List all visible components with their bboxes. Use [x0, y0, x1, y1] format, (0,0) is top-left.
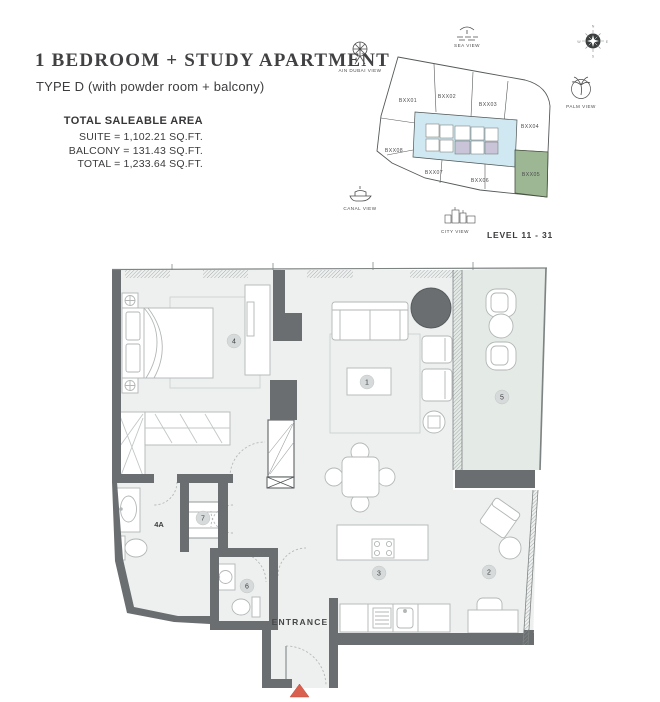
view-label-city: CITY VIEW: [441, 229, 469, 234]
key-plan-building: BXX01 BXX02 BXX03 BXX04 BXX05 BXX06 BXX0…: [377, 57, 550, 197]
unit-label-bxx04: BXX04: [521, 124, 539, 130]
balcony-furniture: [486, 289, 516, 370]
room-label-living: 1: [365, 380, 369, 387]
city-view-icon: [445, 207, 475, 223]
area-line-balcony: BALCONY = 131.43 SQ.FT.: [40, 145, 203, 159]
area-line-suite: SUITE = 1,102.21 SQ.FT.: [40, 131, 203, 145]
compass-n: N: [592, 25, 595, 29]
key-plan: BXX01 BXX02 BXX03 BXX04 BXX05 BXX06 BXX0…: [330, 0, 660, 250]
level-label: LEVEL 11 - 31: [487, 230, 553, 240]
room-label-powder: 6: [245, 584, 249, 591]
unit-label-bxx06: BXX06: [471, 178, 489, 184]
compass-s: S: [592, 55, 595, 59]
canal-view-icon: [350, 186, 371, 201]
room-label-kitchen: 3: [377, 571, 381, 578]
unit-label-bxx03: BXX03: [479, 102, 497, 108]
view-label-palm: PALM VIEW: [566, 104, 596, 109]
entrance-label: ENTRANCE: [272, 617, 329, 627]
shaft: [267, 420, 294, 488]
view-label-sea: SEA VIEW: [454, 43, 480, 48]
area-line-total: TOTAL = 1,233.64 SQ.FT.: [40, 158, 203, 172]
compass-e: E: [606, 40, 609, 44]
sea-view-icon: [457, 27, 478, 40]
compass-w: W: [577, 40, 581, 44]
page-subtitle: TYPE D (with powder room + balcony): [36, 79, 264, 94]
view-label-canal: CANAL VIEW: [343, 206, 376, 211]
unit-label-bxx02: BXX02: [438, 94, 456, 100]
view-label-ain-dubai: AIN DUBAI VIEW: [339, 68, 382, 73]
room-label-balcony: 5: [500, 395, 504, 402]
floor-plan: 1 2 3 4 4A 5 6 7 ENTRANCE: [100, 256, 560, 702]
compass-icon: N E S W: [577, 25, 609, 59]
room-label-closet: 7: [201, 516, 205, 523]
unit-label-bxx01: BXX01: [399, 98, 417, 104]
unit-label-bxx08: BXX08: [385, 148, 403, 154]
area-heading: TOTAL SALEABLE AREA: [40, 115, 203, 127]
room-label-study: 2: [487, 570, 491, 577]
brochure-page: 1 BEDROOM + STUDY APARTMENT TYPE D (with…: [0, 0, 660, 702]
unit-label-bxx07: BXX07: [425, 170, 443, 176]
palm-view-icon: [572, 77, 591, 99]
round-feature: [411, 288, 451, 328]
room-label-bathroom: 4A: [154, 520, 164, 529]
room-label-bedroom: 4: [232, 339, 236, 346]
ferris-wheel-icon: [353, 42, 367, 64]
saleable-area-block: TOTAL SALEABLE AREA SUITE = 1,102.21 SQ.…: [40, 115, 203, 172]
unit-label-bxx05: BXX05: [522, 172, 540, 178]
